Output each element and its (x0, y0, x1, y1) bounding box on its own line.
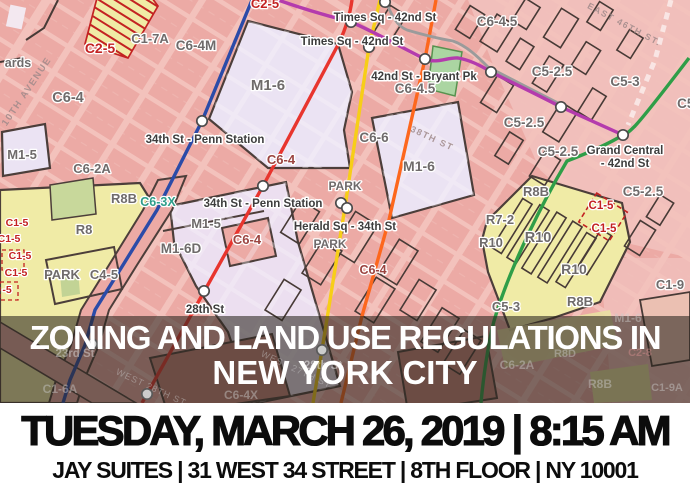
svg-text:Times Sq - 42nd St: Times Sq - 42nd St (301, 36, 404, 48)
svg-text:R8: R8 (76, 222, 93, 237)
svg-text:42nd St - Bryant Pk: 42nd St - Bryant Pk (371, 71, 477, 83)
svg-text:- 42nd St: - 42nd St (601, 158, 650, 170)
svg-text:R10: R10 (561, 261, 587, 277)
svg-text:34th St - Penn Station: 34th St - Penn Station (204, 198, 323, 210)
svg-text:28th St: 28th St (186, 304, 225, 316)
svg-text:M1-6: M1-6 (403, 158, 435, 174)
svg-text:-5: -5 (2, 284, 11, 296)
svg-text:C5-2.5: C5-2.5 (504, 115, 545, 130)
svg-text:C1-5: C1-5 (592, 223, 618, 235)
svg-text:C5-2.5: C5-2.5 (623, 184, 664, 199)
svg-text:C6-4: C6-4 (359, 263, 386, 277)
svg-text:Herald Sq - 34th St: Herald Sq - 34th St (294, 221, 396, 233)
svg-text:C6-6: C6-6 (359, 130, 389, 145)
svg-text:C1-5: C1-5 (9, 250, 32, 262)
svg-text:C6-4: C6-4 (233, 232, 262, 247)
svg-text:C5-2.5: C5-2.5 (532, 64, 573, 79)
svg-text:Grand Central: Grand Central (587, 145, 664, 157)
svg-text:C6-3X: C6-3X (140, 195, 176, 209)
svg-text:PARK: PARK (44, 267, 80, 282)
svg-text:R8B: R8B (567, 294, 593, 309)
svg-text:C1-7A: C1-7A (131, 31, 169, 46)
svg-text:C2-5: C2-5 (85, 40, 116, 56)
svg-text:R10: R10 (525, 230, 552, 246)
svg-text:C6-4.5: C6-4.5 (395, 81, 436, 96)
svg-text:C5-3: C5-3 (492, 299, 520, 314)
svg-text:C1-5: C1-5 (589, 200, 615, 212)
svg-text:C1-5: C1-5 (6, 217, 29, 229)
svg-text:R8B: R8B (523, 184, 549, 199)
svg-text:C5-2.5: C5-2.5 (538, 144, 579, 159)
svg-text:C1-9: C1-9 (656, 277, 684, 292)
svg-text:C2-5: C2-5 (251, 0, 279, 11)
svg-text:R7-2: R7-2 (486, 212, 514, 227)
svg-text:C1-5: C1-5 (0, 233, 21, 245)
svg-text:C5-3: C5-3 (610, 74, 640, 89)
svg-text:C6-4: C6-4 (52, 90, 83, 106)
svg-text:M1-5: M1-5 (191, 216, 221, 231)
svg-text:C5-: C5- (677, 96, 690, 111)
svg-text:M1-6: M1-6 (251, 77, 285, 94)
svg-text:C6-4: C6-4 (267, 152, 296, 167)
svg-text:R8B: R8B (111, 191, 137, 206)
svg-text:C1-5: C1-5 (5, 267, 28, 279)
svg-text:Times Sq - 42nd St: Times Sq - 42nd St (334, 12, 437, 24)
svg-text:C4-5: C4-5 (90, 267, 118, 282)
svg-text:C6-4M: C6-4M (176, 38, 217, 53)
svg-text:34th St - Penn Station: 34th St - Penn Station (146, 134, 265, 146)
svg-text:M1-5: M1-5 (7, 147, 37, 162)
svg-text:PARK: PARK (328, 179, 361, 193)
svg-text:R10: R10 (479, 235, 503, 250)
svg-text:ards: ards (5, 56, 31, 70)
svg-text:C6-4.5: C6-4.5 (477, 14, 518, 29)
svg-text:C6-2A: C6-2A (73, 161, 111, 176)
svg-text:PARK: PARK (313, 237, 346, 251)
svg-text:M1-6D: M1-6D (161, 241, 202, 256)
